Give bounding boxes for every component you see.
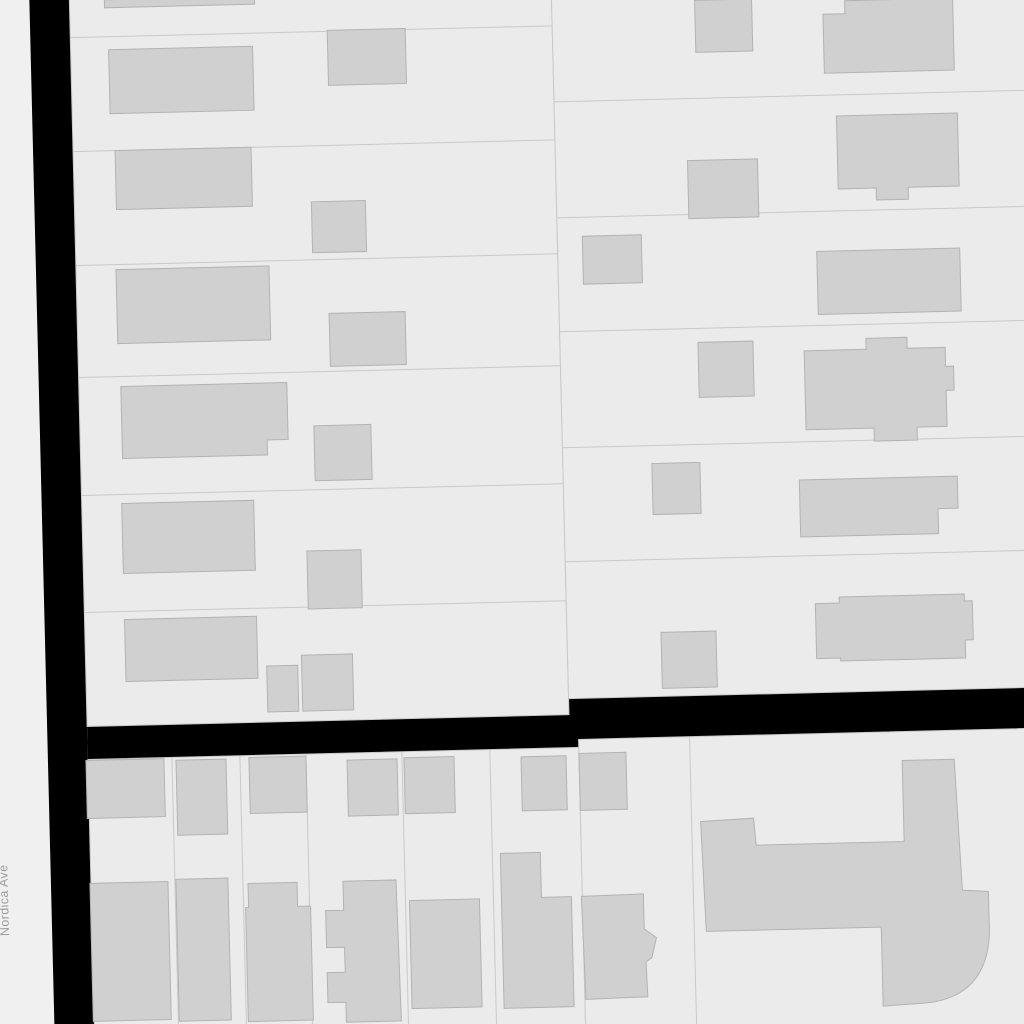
building-footprint-3: [115, 147, 252, 209]
building-footprint-5: [116, 266, 271, 344]
building-footprint-1: [109, 46, 255, 113]
building-footprint-7: [121, 382, 289, 458]
street-name-label: Nordica Ave: [0, 864, 12, 936]
building-footprint-2: [327, 28, 406, 85]
building-footprint-11: [125, 616, 258, 681]
building-footprint-22: [652, 462, 701, 514]
building-footprint-6: [329, 312, 406, 367]
building-footprint-21: [804, 336, 955, 443]
building-footprint-23: [799, 476, 958, 537]
building-footprint-10: [307, 550, 362, 609]
building-footprint-16: [687, 159, 758, 219]
building-footprint-27: [176, 759, 228, 835]
building-footprint-8: [314, 424, 372, 480]
building-footprint-29: [347, 759, 398, 816]
building-footprint-32: [579, 752, 627, 810]
building-footprint-19: [817, 248, 961, 314]
building-footprint-34: [176, 878, 231, 1021]
building-footprint-31: [521, 756, 567, 811]
building-footprint-9: [122, 500, 256, 573]
building-footprint-14: [695, 0, 753, 52]
building-footprint-4: [311, 200, 366, 252]
map-canvas[interactable]: Nordica Ave: [0, 0, 1024, 1024]
building-footprint-13: [301, 654, 353, 711]
building-footprint-18: [582, 235, 642, 284]
building-footprint-25: [815, 594, 974, 662]
building-footprint-33: [90, 882, 171, 1022]
map-rotated-layer: [0, 0, 1024, 1024]
building-footprint-24: [661, 631, 717, 688]
building-footprint-12: [267, 665, 299, 712]
building-footprint-26: [86, 759, 165, 819]
building-footprint-28: [249, 756, 307, 813]
building-footprint-20: [698, 341, 754, 397]
building-footprint-37: [409, 899, 482, 1009]
map-viewport[interactable]: Nordica Ave: [0, 0, 1024, 1024]
building-footprint-30: [404, 756, 455, 813]
